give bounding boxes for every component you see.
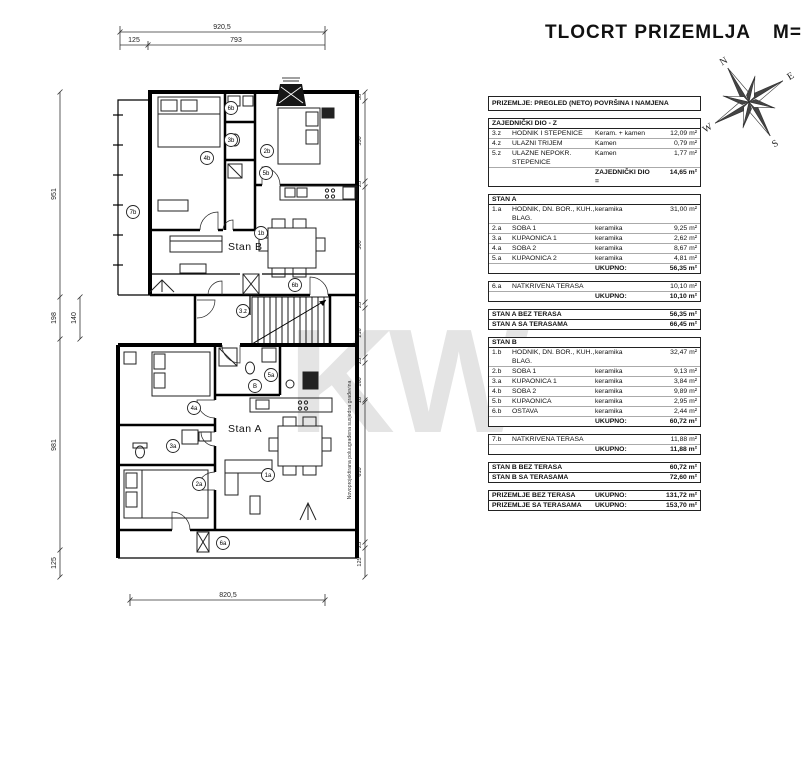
svg-text:5a: 5a (268, 373, 275, 379)
area-summary-table: PRIZEMLJE: PREGLED (NETO) POVRŠINA I NAM… (488, 96, 701, 518)
room-tag-1b: 1b (255, 227, 268, 240)
table-header: PRIZEMLJE: PREGLED (NETO) POVRŠINA I NAM… (488, 96, 701, 111)
svg-text:2a: 2a (196, 482, 203, 488)
table-row: 3.aKUPAONICA 1keramika3,84 m² (489, 377, 700, 387)
terrace-b-outline (113, 100, 150, 295)
room-tag-3z: 3.z (237, 305, 250, 318)
room-tags: 7b 4b 6b 3b 2b 5b 1b 6b 3.z 5a B 4a 3a 2… (127, 102, 302, 550)
bed-soba2-a (124, 352, 210, 396)
utility-fixtures-a (219, 348, 318, 389)
planter-b (243, 274, 259, 294)
sofa-a (225, 460, 272, 514)
svg-text:B: B (253, 384, 257, 390)
dining-table-a (269, 417, 331, 475)
section-stan-a: STAN A 1.aHODNIK, DN. BOR., KUH., BLAG.k… (488, 194, 701, 274)
table-row: 6.aNATKRIVENA TERASA10,10 m² (489, 282, 700, 292)
table-row: 1.bHODNIK, DN. BOR., KUH., BLAG.keramika… (489, 348, 700, 367)
table-row: 4.bSOBA 2keramika9,89 m² (489, 387, 700, 397)
dresser-b (158, 200, 188, 211)
dimension-labels: 920,5 125 793 820,5 951 198 140 981 125 … (51, 24, 363, 599)
table-total-row: UKUPNO:11,88 m² (489, 445, 700, 454)
section-title: ZAJEDNIČKI DIO - Z (489, 119, 700, 129)
section-stan-b: STAN B 1.bHODNIK, DN. BOR., KUH., BLAG.k… (488, 337, 701, 427)
section-title: STAN A (489, 195, 700, 205)
table-row: 3.zHODNIK I STEPENICEKeram. + kamen12,09… (489, 129, 700, 139)
section-title: STAN B (489, 338, 700, 348)
dimension-lines (58, 26, 368, 606)
room-tag-1a: 1a (262, 469, 275, 482)
terrace-a-outline (118, 274, 357, 558)
table-total-row: ZAJEDNIČKI DIO =14,65 m² (489, 168, 700, 186)
table-row: 7.bNATKRIVENA TERASA11,88 m² (489, 435, 700, 445)
furniture-stan-a (124, 348, 332, 552)
svg-text:7b: 7b (130, 210, 137, 216)
side-note: Novoprojektirana poluugrađena susjedna g… (347, 380, 353, 499)
summary-prizemlje: PRIZEMLJE BEZ TERASAUKUPNO:131,72 m² PRI… (488, 490, 701, 511)
compass-label-e: E (785, 70, 796, 83)
table-row: 4.zULAZNI TRIJEMKamen0,79 m² (489, 139, 700, 149)
compass-label-n: N (718, 55, 730, 68)
page-title: TLOCRT PRIZEMLJAM=1:100 (545, 22, 809, 44)
room-tag-6a: 6a (217, 537, 230, 550)
compass-label-w: W (701, 121, 715, 136)
svg-text:1b: 1b (258, 231, 265, 237)
svg-text:6a: 6a (220, 541, 227, 547)
table-total-row: UKUPNO:60,72 m² (489, 417, 700, 426)
table-total-row: UKUPNO:10,10 m² (489, 292, 700, 301)
summary-stan-a: STAN A BEZ TERASA56,35 m² STAN A SA TERA… (488, 309, 701, 330)
dim-left-1: 951 (51, 188, 58, 200)
dim-top-total: 920,5 (213, 24, 231, 31)
dim-right-12: 125 (357, 557, 363, 566)
apartment-label-stan-b: Stan B (228, 241, 263, 253)
furniture-stan-b (150, 96, 357, 294)
svg-text:3a: 3a (170, 444, 177, 450)
planter-a (197, 532, 209, 552)
table-row: 1.aHODNIK, DN. BOR., KUH., BLAG.keramika… (489, 205, 700, 224)
summary-stan-b: STAN B BEZ TERASA60,72 m² STAN B SA TERA… (488, 462, 701, 483)
title-text: TLOCRT PRIZEMLJA (545, 22, 751, 43)
dim-left-2: 198 (51, 312, 58, 324)
dim-top-b: 793 (230, 37, 242, 44)
section-terasa-b: 7.bNATKRIVENA TERASA11,88 m² UKUPNO:11,8… (488, 434, 701, 455)
svg-text:2b: 2b (264, 149, 271, 155)
floor-plan-drawing: 920,5 125 793 820,5 951 198 140 981 125 … (0, 0, 480, 660)
table-header-text: PRIZEMLJE: PREGLED (NETO) POVRŠINA I NAM… (492, 100, 669, 107)
svg-text:6b: 6b (292, 283, 299, 289)
svg-text:3b: 3b (228, 138, 235, 144)
svg-text:1a: 1a (265, 473, 272, 479)
summary-row: STAN B SA TERASAMA72,60 m² (489, 473, 700, 482)
summary-row: STAN B BEZ TERASA60,72 m² (489, 463, 700, 473)
room-tag-7b: 7b (127, 206, 140, 219)
floor-plan-sheet: KW® TLOCRT PRIZEMLJAM=1:100 N E S W (0, 0, 809, 768)
table-row: 4.aSOBA 2keramika8,67 m² (489, 244, 700, 254)
svg-text:5b: 5b (263, 171, 270, 177)
dim-left-3: 981 (51, 439, 58, 451)
bed-soba1-a (124, 470, 208, 518)
room-tag-6b-bottom: 6b (289, 279, 302, 292)
summary-row: STAN A BEZ TERASA56,35 m² (489, 310, 700, 320)
apartment-label-stan-a: Stan A (228, 423, 262, 435)
room-tag-3a: 3a (167, 440, 180, 453)
door-swings (172, 167, 328, 530)
compass-label-s: S (770, 138, 781, 150)
lamp-symbol-a (300, 503, 316, 520)
room-tag-5b: 5b (260, 167, 273, 180)
room-tag-boiler: B (249, 380, 262, 393)
entrance-porch (276, 78, 306, 106)
dim-left-sub: 140 (71, 312, 78, 324)
sofa-b (170, 236, 222, 273)
table-total-row: UKUPNO:56,35 m² (489, 264, 700, 273)
scale-label: M= (773, 22, 802, 43)
room-tag-4b: 4b (201, 152, 214, 165)
section-terasa-a: 6.aNATKRIVENA TERASA10,10 m² UKUPNO:10,1… (488, 281, 701, 302)
table-row: 6.bOSTAVAkeramika2,44 m² (489, 407, 700, 417)
room-tag-4a: 4a (188, 402, 201, 415)
svg-text:4a: 4a (191, 406, 198, 412)
dining-table-b (259, 219, 325, 277)
svg-text:6b: 6b (228, 106, 235, 112)
room-tag-6b-top: 6b (225, 102, 238, 115)
room-tag-2a: 2a (193, 478, 206, 491)
staircase (252, 297, 330, 344)
svg-text:4b: 4b (204, 156, 211, 162)
room-tag-2b: 2b (261, 145, 274, 158)
table-row: 3.aKUPAONICA 1keramika2,62 m² (489, 234, 700, 244)
lamp-symbol-b (150, 280, 174, 292)
summary-row: PRIZEMLJE SA TERASAMAUKUPNO:153,70 m² (489, 501, 700, 510)
dim-bottom: 820,5 (219, 592, 237, 599)
table-row: 2.aSOBA 1keramika9,25 m² (489, 224, 700, 234)
room-tag-5a: 5a (265, 369, 278, 382)
bed-soba1-b (278, 108, 334, 164)
bed-soba2-b (158, 97, 220, 147)
dim-top-a: 125 (128, 37, 140, 44)
table-row: 5.aKUPAONICA 2keramika4,81 m² (489, 254, 700, 264)
summary-row: PRIZEMLJE BEZ TERASAUKUPNO:131,72 m² (489, 491, 700, 501)
svg-text:3.z: 3.z (239, 309, 247, 315)
kitchen-a (250, 398, 332, 412)
section-zajednicki: ZAJEDNIČKI DIO - Z 3.zHODNIK I STEPENICE… (488, 118, 701, 187)
table-row: 5.zULAZNE NEPOKR. STEPENICEKamen1,77 m² (489, 149, 700, 168)
table-row: 2.bSOBA 1keramika9,13 m² (489, 367, 700, 377)
table-row: 5.bKUPAONICAkeramika2,95 m² (489, 397, 700, 407)
summary-row: STAN A SA TERASAMA66,45 m² (489, 320, 700, 329)
north-compass: N E S W (692, 42, 807, 157)
kitchen-b (280, 186, 357, 200)
dim-left-4: 125 (51, 557, 58, 569)
room-tag-3b: 3b (225, 134, 238, 147)
